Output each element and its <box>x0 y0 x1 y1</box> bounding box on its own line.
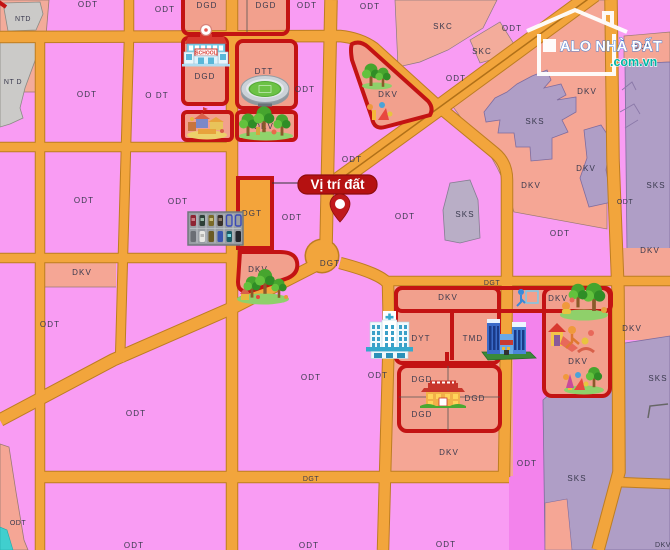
svg-text:ODT: ODT <box>282 213 302 222</box>
svg-text:SKS: SKS <box>525 117 544 126</box>
svg-text:SKS: SKS <box>455 210 474 219</box>
svg-text:SKS: SKS <box>567 474 586 483</box>
svg-text:DKV: DKV <box>439 448 459 457</box>
svg-text:ODT: ODT <box>295 85 315 94</box>
svg-text:ALO NHÀ ĐẤT: ALO NHÀ ĐẤT <box>560 38 662 55</box>
svg-text:ODT: ODT <box>436 540 456 549</box>
svg-text:DKV: DKV <box>438 293 458 302</box>
svg-text:ODT: ODT <box>155 5 175 14</box>
svg-text:DKV: DKV <box>548 294 568 303</box>
svg-text:ODT: ODT <box>168 197 188 206</box>
svg-text:DGT: DGT <box>303 476 320 483</box>
svg-text:NT D: NT D <box>4 79 22 86</box>
svg-text:ODT: ODT <box>10 520 27 527</box>
svg-text:ODT: ODT <box>299 541 319 550</box>
svg-text:ODT: ODT <box>78 0 98 9</box>
svg-text:SKC: SKC <box>472 47 492 56</box>
svg-text:DTT: DTT <box>255 67 274 76</box>
svg-text:DKV: DKV <box>622 324 642 333</box>
svg-text:DKV: DKV <box>521 181 541 190</box>
svg-text:ODT: ODT <box>126 409 146 418</box>
svg-text:ODT: ODT <box>74 196 94 205</box>
svg-text:DKV: DKV <box>576 164 596 173</box>
svg-text:SKC: SKC <box>433 22 453 31</box>
svg-text:DGD: DGD <box>255 1 276 10</box>
svg-text:DKV: DKV <box>72 268 92 277</box>
svg-text:SKS: SKS <box>648 374 667 383</box>
svg-text:DKV: DKV <box>568 357 588 366</box>
svg-text:DKV: DKV <box>378 90 398 99</box>
svg-text:DGT: DGT <box>320 259 340 268</box>
svg-text:DGD: DGD <box>411 410 432 419</box>
svg-text:ODT: ODT <box>124 541 144 550</box>
svg-text:SKS: SKS <box>646 181 665 190</box>
svg-text:.com.vn: .com.vn <box>610 55 657 69</box>
svg-text:DGD: DGD <box>194 72 215 81</box>
svg-text:ODT: ODT <box>517 459 537 468</box>
svg-text:ODT: ODT <box>77 90 97 99</box>
svg-text:NTD: NTD <box>15 16 31 23</box>
svg-text:DGT: DGT <box>484 280 501 287</box>
svg-text:DYT: DYT <box>411 334 430 343</box>
svg-text:ODT: ODT <box>301 373 321 382</box>
svg-text:ODT: ODT <box>40 320 60 329</box>
svg-text:ODT: ODT <box>342 155 362 164</box>
svg-text:DKV: DKV <box>577 87 597 96</box>
svg-text:DGT: DGT <box>242 209 262 218</box>
svg-text:ODT: ODT <box>360 2 380 11</box>
svg-text:Vị trí đất: Vị trí đất <box>310 177 365 192</box>
svg-text:ODT: ODT <box>368 371 388 380</box>
svg-text:DKV: DKV <box>655 542 670 549</box>
svg-text:SCHOOL: SCHOOL <box>195 51 216 57</box>
svg-text:ODT: ODT <box>395 212 415 221</box>
svg-text:DGD: DGD <box>411 375 432 384</box>
svg-text:DGD: DGD <box>464 394 485 403</box>
svg-text:ODT: ODT <box>550 229 570 238</box>
svg-text:DGD: DGD <box>196 1 217 10</box>
svg-text:ODT: ODT <box>446 74 466 83</box>
svg-text:TMD: TMD <box>463 334 484 343</box>
svg-text:ODT: ODT <box>502 24 522 33</box>
svg-text:ODT: ODT <box>617 199 634 206</box>
svg-text:DKV: DKV <box>640 246 660 255</box>
svg-text:O DT: O DT <box>145 91 169 100</box>
svg-text:ODT: ODT <box>297 1 317 10</box>
